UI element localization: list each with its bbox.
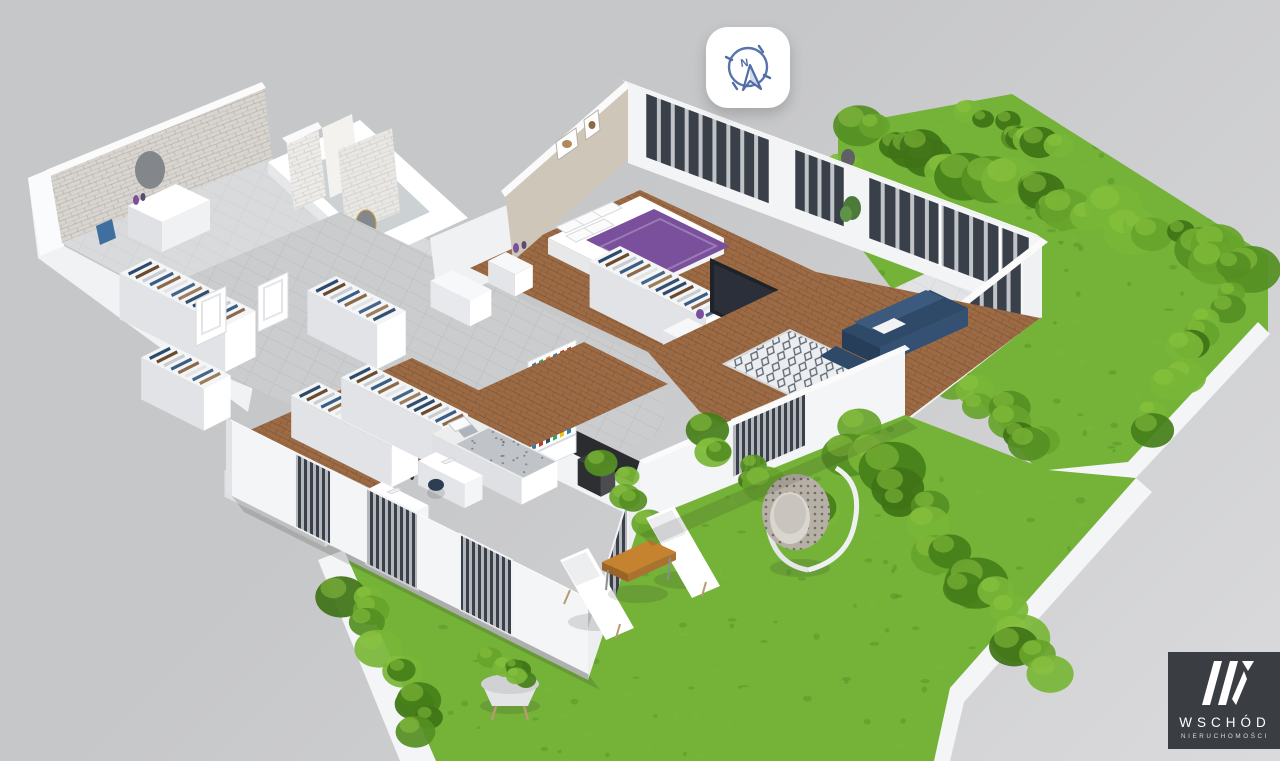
brand-logo-mark xyxy=(1192,659,1256,711)
compass-north-icon: N xyxy=(717,37,779,99)
bathroom-mirror xyxy=(135,151,165,189)
floorplan-svg xyxy=(0,0,1280,761)
compass-badge[interactable]: N xyxy=(706,27,790,108)
brand-title: WSCHÓD xyxy=(1179,715,1271,730)
compass-letter-n: N xyxy=(740,56,750,69)
floorplan-scene: N WSCHÓD NIERUCHOMOŚCI xyxy=(0,0,1280,761)
brand-subtitle: NIERUCHOMOŚCI xyxy=(1181,733,1269,740)
brand-logo: WSCHÓD NIERUCHOMOŚCI xyxy=(1168,652,1280,749)
